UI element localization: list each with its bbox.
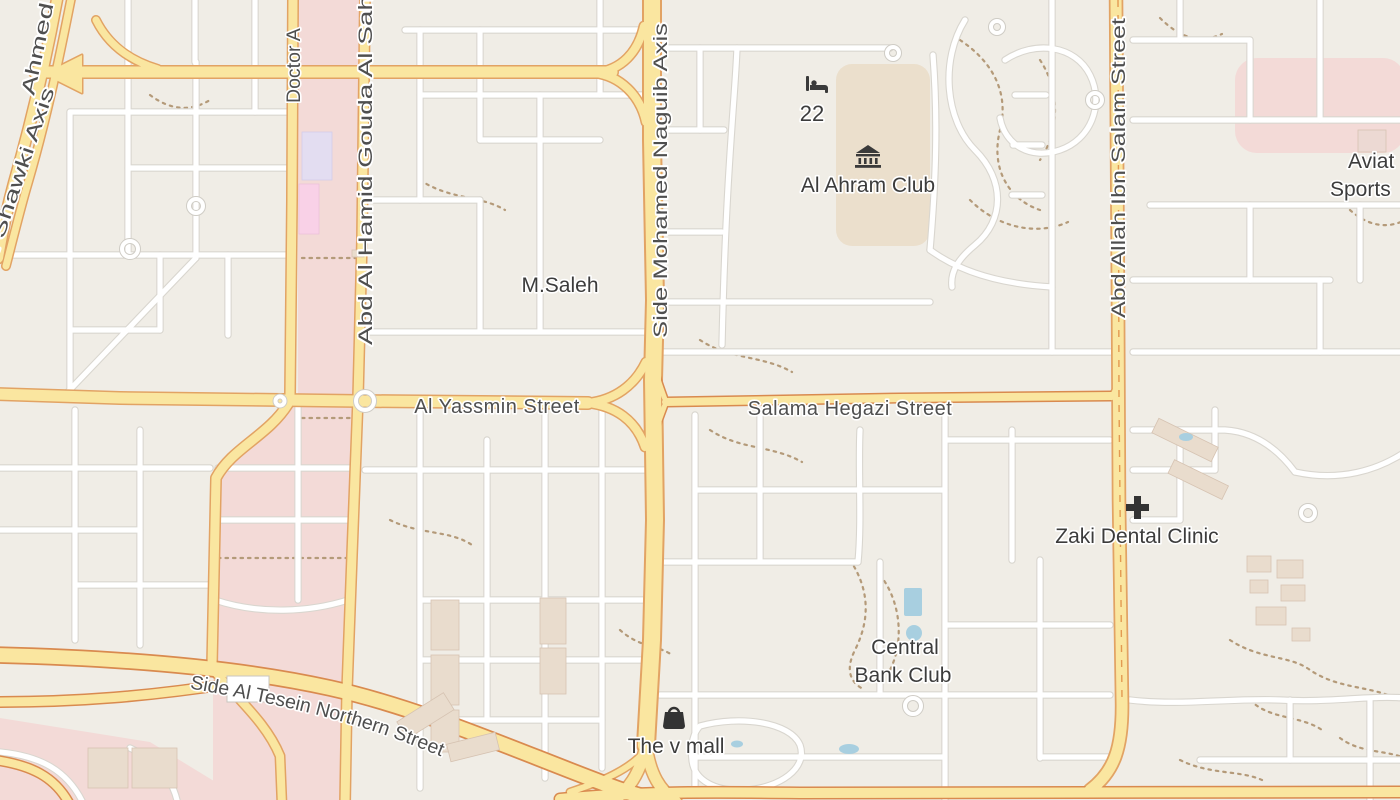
place-label-aviation-line1: Aviat — [1348, 150, 1394, 173]
place-label-central-bank-line1: Central — [871, 636, 939, 659]
pink-building — [299, 184, 319, 234]
al-ahram-club-grounds — [836, 64, 930, 246]
street-label-salama-hegazi: Salama Hegazi Street — [748, 398, 953, 420]
street-label-abd-al-hamid-gouda: Abd Al Hamid Gouda Al Sah — [355, 0, 377, 345]
street-label-side-mohamed-naguib: Side Mohamed Naguib Axis — [650, 23, 672, 338]
street-label-doctor-a: Doctor A — [283, 28, 305, 103]
place-label-m-saleh: M.Saleh — [521, 274, 598, 297]
place-label-zaki-dental-clinic: Zaki Dental Clinic — [1055, 525, 1218, 548]
place-label-the-v-mall: The v mall — [628, 735, 725, 758]
place-label-central-bank-line2: Bank Club — [855, 664, 952, 687]
place-label-aviation-line2: Sports — [1330, 178, 1391, 201]
map-svg: Ahmed Shawki Axis Ahmed Shawki Axis Doct… — [0, 0, 1400, 800]
place-label-hotel-22: 22 — [800, 101, 824, 126]
map-canvas[interactable]: Ahmed Shawki Axis Ahmed Shawki Axis Doct… — [0, 0, 1400, 800]
street-label-abd-allah-ibn-salam: Abd Allah Ibn Salam Street — [1108, 17, 1130, 318]
lavender-building — [302, 132, 332, 180]
place-label-al-ahram-club: Al Ahram Club — [801, 174, 935, 197]
street-label-al-yassmin: Al Yassmin Street — [414, 396, 580, 418]
